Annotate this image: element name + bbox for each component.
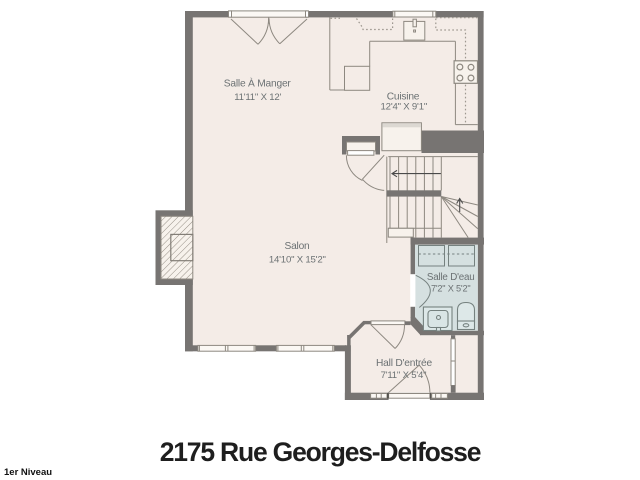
svg-text:Salon: Salon	[284, 241, 309, 252]
svg-text:12'4" X 9'1": 12'4" X 9'1"	[381, 102, 427, 113]
svg-text:7'2" X 5'2": 7'2" X 5'2"	[431, 284, 471, 294]
svg-text:Salle À Manger: Salle À Manger	[224, 76, 292, 89]
svg-text:Hall D'entrée: Hall D'entrée	[376, 358, 433, 369]
svg-text:14'10" X 15'2": 14'10" X 15'2"	[269, 255, 326, 266]
svg-text:11'11" X 12': 11'11" X 12'	[234, 92, 281, 103]
svg-text:Salle D'eau: Salle D'eau	[427, 272, 475, 283]
svg-text:7'11" X 5'4": 7'11" X 5'4"	[381, 370, 427, 381]
